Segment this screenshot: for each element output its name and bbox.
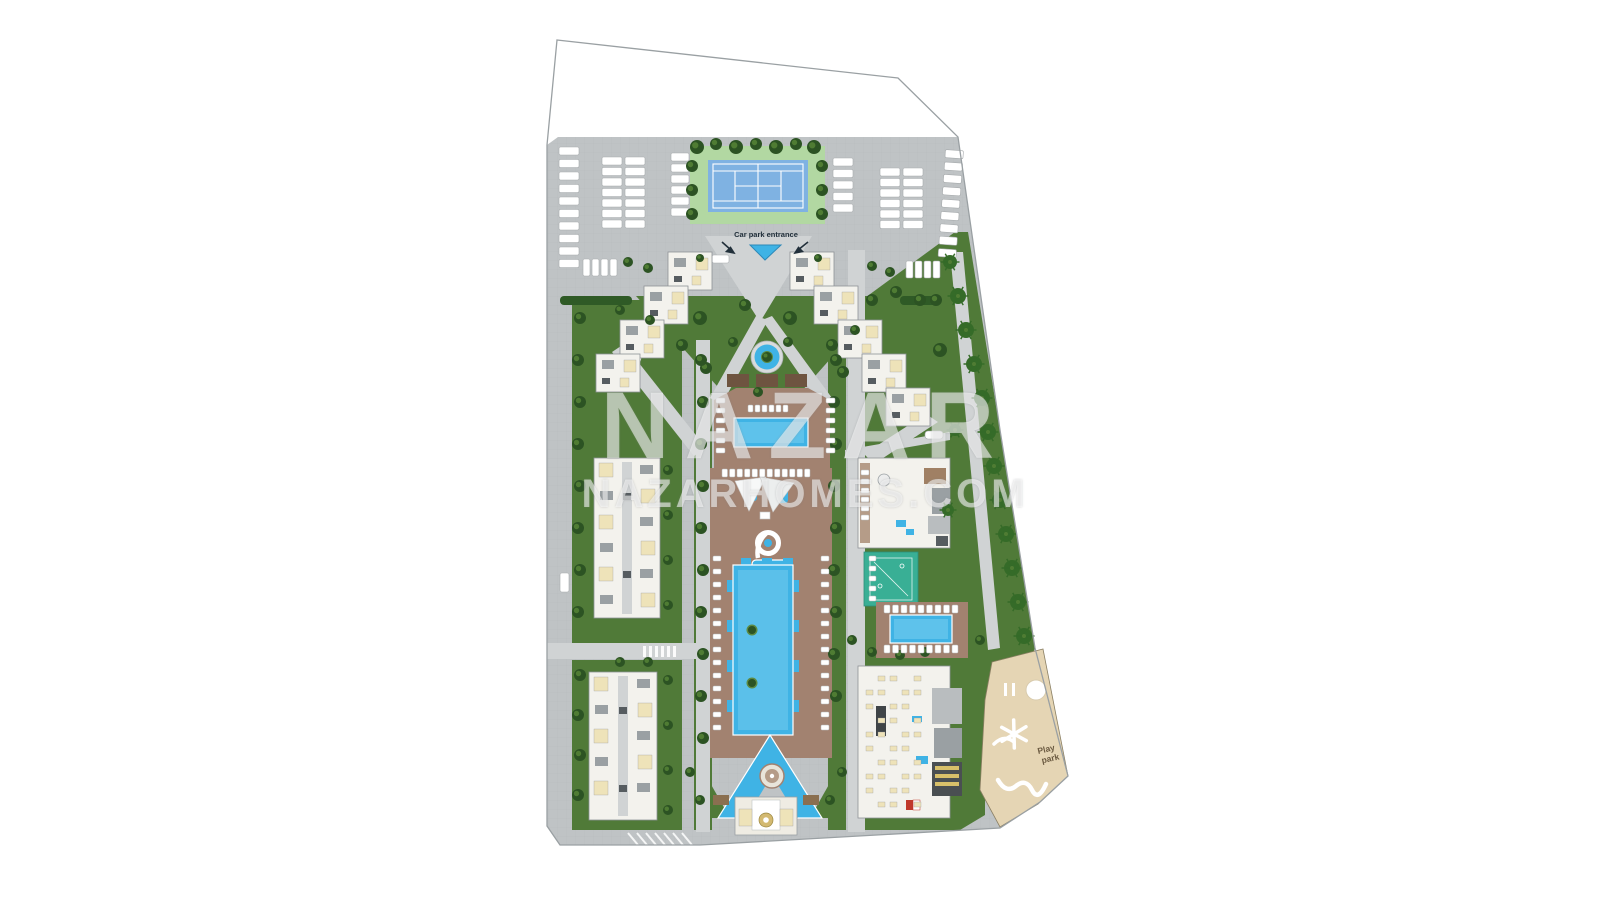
unit-roof <box>600 491 613 500</box>
apartment-unit-roof <box>886 378 895 387</box>
furniture <box>914 774 921 779</box>
lounger <box>821 582 829 587</box>
play-park: Play park <box>980 649 1068 827</box>
apartment-unit <box>862 354 906 392</box>
apartment-unit-roof <box>674 276 682 282</box>
furniture <box>878 676 885 681</box>
crosswalk-stripe <box>661 646 664 657</box>
tree-icon <box>839 769 844 774</box>
tree-icon <box>892 288 897 293</box>
tree-icon <box>741 301 746 306</box>
lounger <box>927 645 933 653</box>
lounger <box>713 660 721 665</box>
tree-icon <box>818 186 823 191</box>
parking-stall <box>625 178 645 186</box>
unit-roof <box>594 729 608 743</box>
lounger <box>861 515 869 520</box>
playground-equipment-icon <box>1011 731 1018 738</box>
lounger <box>826 408 835 413</box>
palm-tree-icon <box>1004 532 1008 536</box>
palm-tree-icon <box>980 396 984 400</box>
lounger <box>944 605 950 613</box>
tree-icon <box>832 524 837 529</box>
lounger <box>861 506 869 511</box>
tree-icon <box>699 650 704 655</box>
furniture <box>890 676 897 681</box>
lounger <box>713 699 721 704</box>
lounger <box>722 469 728 477</box>
lounger <box>821 712 829 717</box>
car-park-entrance-label: Car park entrance <box>734 230 798 239</box>
lounger <box>737 469 743 477</box>
furniture <box>878 718 885 723</box>
tree-icon <box>574 524 579 529</box>
lounger <box>713 634 721 639</box>
lounger <box>910 605 916 613</box>
unit-roof <box>640 517 653 526</box>
lounger <box>869 586 876 591</box>
parking-stall <box>559 160 579 168</box>
apartment-unit-roof <box>624 360 636 372</box>
lounger <box>748 405 753 412</box>
parking-stall <box>833 204 853 212</box>
lounger <box>775 469 781 477</box>
lounger <box>884 645 890 653</box>
parking-stall <box>941 211 960 220</box>
social-building <box>858 666 962 818</box>
tree-icon <box>576 482 581 487</box>
apartment-unit <box>620 320 664 358</box>
lounger <box>716 418 725 423</box>
furniture <box>902 774 909 779</box>
parking-stall <box>924 261 931 278</box>
car <box>712 255 729 263</box>
tree-icon <box>574 440 579 445</box>
unit-roof <box>595 757 608 766</box>
tree-icon <box>832 692 837 697</box>
tree-icon <box>935 345 941 351</box>
unit-roof <box>641 541 655 555</box>
lounger <box>745 469 751 477</box>
parking-stall <box>559 147 579 155</box>
lounger <box>952 605 958 613</box>
lounger <box>782 469 788 477</box>
parking-stall <box>625 220 645 228</box>
apartment-unit <box>790 252 834 290</box>
parking-stall <box>933 261 940 278</box>
lounger <box>910 645 916 653</box>
parking-stall <box>915 261 922 278</box>
unit-roof <box>595 705 608 714</box>
parking-stall <box>625 210 645 218</box>
unit-roof <box>600 543 613 552</box>
furniture <box>890 760 897 765</box>
apartment-unit-roof <box>674 258 686 267</box>
unit-roof <box>594 781 608 795</box>
tree-icon <box>678 341 683 346</box>
tree-icon <box>647 317 652 322</box>
lounger <box>713 595 721 600</box>
parking-stall <box>592 259 599 276</box>
unit-roof <box>619 785 627 792</box>
lounger <box>869 576 876 581</box>
unit-roof <box>600 595 613 604</box>
unit-roof <box>637 679 650 688</box>
apartment-unit <box>596 354 640 392</box>
furniture <box>902 690 909 695</box>
apartment-unit-roof <box>910 412 919 421</box>
palm-tree-icon <box>953 428 957 432</box>
tree-icon <box>916 296 921 301</box>
lounger <box>901 645 907 653</box>
tree-icon <box>617 659 622 664</box>
tree-icon <box>574 608 579 613</box>
furniture <box>878 802 885 807</box>
palm-tree-icon <box>998 498 1002 502</box>
tree-icon <box>699 398 704 403</box>
parking-stall <box>671 197 689 205</box>
parking-stall <box>941 199 960 208</box>
palm-tree-icon <box>946 508 950 512</box>
lounger <box>821 595 829 600</box>
furniture <box>902 788 909 793</box>
tree-icon <box>869 649 874 654</box>
apartment-unit <box>838 320 882 358</box>
tree-icon <box>730 339 735 344</box>
parking-stall <box>833 193 853 201</box>
parking-stall <box>903 200 923 208</box>
lounger <box>826 428 835 433</box>
lounger <box>752 469 758 477</box>
crosswalk-stripe <box>667 646 670 657</box>
apartment-unit-roof <box>890 360 902 372</box>
lounger <box>767 469 773 477</box>
apartment-unit-roof <box>862 344 871 353</box>
apartment-unit-roof <box>868 360 880 369</box>
lounger <box>716 398 725 403</box>
furniture <box>914 718 921 723</box>
apartment-unit-roof <box>844 344 852 350</box>
parking-stall <box>602 210 622 218</box>
tree-icon <box>665 467 670 472</box>
lounger <box>927 605 933 613</box>
tree-icon <box>868 296 873 301</box>
lounger <box>901 605 907 613</box>
furniture <box>902 704 909 709</box>
palm-tree-icon <box>1022 634 1026 638</box>
tree-icon <box>695 313 701 319</box>
tree-icon <box>818 162 823 167</box>
lounger <box>935 645 941 653</box>
unit-roof <box>641 489 655 503</box>
parking-stall <box>880 179 900 187</box>
furniture <box>866 704 873 709</box>
apartment-unit-roof <box>868 378 876 384</box>
apartment-unit-roof <box>620 378 629 387</box>
parking-stall <box>625 189 645 197</box>
furniture <box>890 788 897 793</box>
tree-icon <box>697 255 701 259</box>
tree-icon <box>576 314 581 319</box>
parking-stall <box>625 199 645 207</box>
tree-icon <box>830 566 835 571</box>
parking-stall <box>880 221 900 229</box>
tree-icon <box>699 734 704 739</box>
tree-icon <box>574 356 579 361</box>
tree-icon <box>645 265 650 270</box>
minibus <box>925 431 943 439</box>
parking-stall <box>559 222 579 230</box>
tree-icon <box>818 210 823 215</box>
tree-icon <box>688 186 693 191</box>
tree-icon <box>755 389 760 394</box>
parking-stall <box>903 210 923 218</box>
parking-stall <box>880 189 900 197</box>
apartment-unit-roof <box>892 394 904 403</box>
lounger <box>730 469 736 477</box>
parking-stall <box>602 157 622 165</box>
lounger <box>760 469 766 477</box>
lounger <box>826 448 835 453</box>
tree-icon <box>576 751 581 756</box>
apartment-unit-roof <box>820 310 828 316</box>
parking-stall <box>880 200 900 208</box>
unit-roof <box>637 731 650 740</box>
apartment-unit <box>814 286 858 324</box>
lounger <box>826 418 835 423</box>
lounger <box>713 556 721 561</box>
lounger <box>713 712 721 717</box>
parking-stall <box>602 178 622 186</box>
tree-icon <box>665 807 670 812</box>
furniture <box>890 802 897 807</box>
lounger <box>797 469 803 477</box>
tree-icon <box>792 140 797 145</box>
furniture <box>890 718 897 723</box>
palm-tree-icon <box>956 294 960 298</box>
lounger <box>713 725 721 730</box>
unit-roof <box>599 463 613 477</box>
lounger <box>716 428 725 433</box>
apartment-unit-roof <box>914 394 926 406</box>
lounger <box>821 699 829 704</box>
car <box>560 573 569 592</box>
crosswalk-stripe <box>649 646 652 657</box>
tree-icon <box>645 659 650 664</box>
parking-stall <box>602 220 622 228</box>
tree-icon <box>697 797 702 802</box>
lounger <box>869 596 876 601</box>
tree-icon <box>687 769 692 774</box>
tree-icon <box>576 566 581 571</box>
lounger <box>713 686 721 691</box>
tree-icon <box>977 637 982 642</box>
parking-stall <box>625 168 645 176</box>
parking-stall <box>939 236 958 245</box>
hedge <box>560 296 632 305</box>
tree-icon <box>828 341 833 346</box>
tree-icon <box>887 269 892 274</box>
tree-icon <box>869 263 874 268</box>
main-pool <box>727 558 799 735</box>
tree-icon <box>815 255 819 259</box>
lounger <box>821 621 829 626</box>
apartment-unit-roof <box>838 310 847 319</box>
furniture <box>878 774 885 779</box>
palm-tree-icon <box>992 464 996 468</box>
lounger <box>821 569 829 574</box>
lounger <box>716 438 725 443</box>
tree-icon <box>832 608 837 613</box>
tree-icon <box>752 140 757 145</box>
furniture <box>866 690 873 695</box>
tree-icon <box>771 142 777 148</box>
lounger <box>713 608 721 613</box>
tree-icon <box>699 482 704 487</box>
parking-stall <box>602 168 622 176</box>
apartment-unit-roof <box>650 292 662 301</box>
lounger <box>821 608 829 613</box>
parking-stall <box>903 189 923 197</box>
furniture <box>914 802 921 807</box>
tree-icon <box>697 524 702 529</box>
apartment-unit-roof <box>796 258 808 267</box>
parking-stall <box>601 259 608 276</box>
unit-roof <box>640 569 653 578</box>
lounger <box>821 686 829 691</box>
parking-stall <box>583 259 590 276</box>
parking-stall <box>559 247 579 255</box>
apartment-unit-roof <box>602 360 614 369</box>
palm-tree-icon <box>972 362 976 366</box>
lounger <box>716 448 725 453</box>
apartment-unit-roof <box>644 344 653 353</box>
apartment-unit-roof <box>892 412 900 418</box>
site-plan-image: Play park Car park entrance NAZAR NAZARH… <box>0 0 1600 900</box>
lounger <box>869 556 876 561</box>
tree-icon <box>832 356 837 361</box>
tree-icon <box>665 722 670 727</box>
palm-tree-icon <box>1010 566 1014 570</box>
corridor <box>618 676 628 816</box>
unit-roof <box>640 465 653 474</box>
furniture <box>878 732 885 737</box>
lounger <box>713 647 721 652</box>
parking-stall <box>671 153 689 161</box>
unit-roof <box>637 783 650 792</box>
lounger <box>713 621 721 626</box>
palm-tree-icon <box>986 430 990 434</box>
furniture <box>914 760 921 765</box>
furniture <box>902 732 909 737</box>
parking-stall <box>559 172 579 180</box>
lounger <box>783 405 788 412</box>
apartment-unit-roof <box>866 326 878 338</box>
furniture <box>878 760 885 765</box>
apartment-unit-roof <box>602 378 610 384</box>
furniture <box>866 746 873 751</box>
apartment-unit <box>886 388 930 426</box>
lounger <box>935 605 941 613</box>
path-central-left <box>696 340 710 832</box>
tree-icon <box>617 307 622 312</box>
apartment-unit-roof <box>692 276 701 285</box>
tree-icon <box>625 259 630 264</box>
tree-icon <box>665 767 670 772</box>
lounger <box>826 438 835 443</box>
apartment-building-left-middle <box>594 458 660 618</box>
furniture <box>866 732 873 737</box>
tree-icon <box>712 140 717 145</box>
lounger <box>952 645 958 653</box>
unit-roof <box>594 677 608 691</box>
tree-icon <box>839 368 844 373</box>
parking-stall <box>559 210 579 218</box>
lounger <box>762 405 767 412</box>
lounger <box>821 673 829 678</box>
apartment-unit-roof <box>668 310 677 319</box>
parking-stall <box>602 189 622 197</box>
apartment-unit <box>668 252 712 290</box>
tree-icon <box>576 398 581 403</box>
parking-stall <box>943 174 962 183</box>
lounger <box>713 582 721 587</box>
lounger <box>918 645 924 653</box>
furniture <box>866 788 873 793</box>
furniture <box>902 746 909 751</box>
lounger <box>826 398 835 403</box>
parking-stall <box>942 187 961 196</box>
lounger <box>821 725 829 730</box>
unit-roof <box>638 703 652 717</box>
fountain <box>751 341 783 373</box>
tree-icon <box>692 142 698 148</box>
tree-icon <box>827 797 832 802</box>
tree-icon <box>665 602 670 607</box>
lounger <box>769 405 774 412</box>
parking-stall <box>671 175 689 183</box>
lounger <box>861 497 869 502</box>
tree-icon <box>697 692 702 697</box>
parking-stall <box>833 170 853 178</box>
site-plan-svg: Play park Car park entrance <box>540 25 1070 875</box>
unit-roof <box>623 571 631 578</box>
tree-icon <box>697 608 702 613</box>
tree-icon <box>785 313 791 319</box>
parking-stall <box>559 185 579 193</box>
parking-stall <box>559 235 579 243</box>
tree-icon <box>849 637 854 642</box>
lounger <box>821 634 829 639</box>
unit-roof <box>638 755 652 769</box>
tree-icon <box>699 566 704 571</box>
lounger <box>790 469 796 477</box>
parking-stall <box>833 181 853 189</box>
tree-icon <box>574 791 579 796</box>
tree-icon <box>852 327 857 332</box>
palm-tree-icon <box>948 260 952 264</box>
parking-stall <box>559 197 579 205</box>
lounger <box>861 479 869 484</box>
parking-stall <box>944 162 963 171</box>
apartment-unit-roof <box>820 292 832 301</box>
tree-icon <box>665 512 670 517</box>
apartment-unit-roof <box>626 344 634 350</box>
lounger <box>944 645 950 653</box>
apartment-unit-roof <box>650 310 658 316</box>
lounger <box>884 605 890 613</box>
lounger <box>713 569 721 574</box>
